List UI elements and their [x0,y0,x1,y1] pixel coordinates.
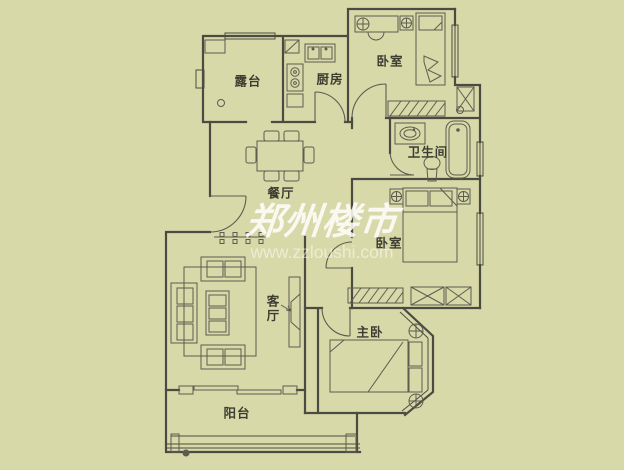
tv [291,294,300,330]
dining-chair [304,147,314,163]
watermark-url: www.zzloushi.com [244,242,400,263]
bedroom-north-door-arc [352,84,386,118]
desk-lamp [357,18,369,30]
duct-shaft [457,87,475,114]
coffee-table [206,291,229,335]
desk-chair [368,32,384,40]
room-label-bedroom-north: 卧室 [376,51,403,70]
balcony-railing [166,434,360,452]
stove [287,64,303,91]
kitchen-sink [305,44,335,62]
bathtub [446,121,470,178]
bedside-lamp [409,324,423,338]
nightstand-lamp [457,189,470,204]
master-door-arc [322,308,350,336]
wardrobe-hatched [348,288,403,303]
room-label-master: 主卧 [356,322,383,341]
kitchen-door-arc [315,92,345,122]
sofa-bottom [201,345,245,369]
terrace-window [225,33,275,39]
fridge [285,40,299,53]
bed-single [416,13,445,85]
nightstand-lamp [400,16,413,30]
room-label-terrace: 露台 [234,71,261,90]
closet-x-box [411,287,444,305]
bathroom-window [477,142,483,176]
bedroom-north-window [452,25,458,77]
floor-drain [183,450,190,457]
room-label-kitchen: 厨房 [316,69,343,88]
terrace-cabinet [205,40,225,53]
dining-chair [246,147,256,163]
bedside-lamp [409,394,423,408]
sofa-top [201,257,245,281]
kitchen-cabinet [287,94,303,107]
wardrobe-hatched [388,101,445,116]
dining-chair [284,171,299,181]
dining-chair [264,171,279,181]
bedroom-east-window [477,213,483,265]
bed-master [330,340,422,392]
closet-x-box [446,287,471,305]
dining-table [257,141,303,171]
balcony-sliding-door [179,386,297,394]
terrace-door-knob [218,100,225,107]
dining-chair [284,131,299,141]
bed-double [403,188,457,262]
room-label-balcony: 阳台 [223,403,250,422]
dining-chair [264,131,279,141]
room-label-living: 客厅 [263,295,282,324]
bedroom-north-fixtures [355,13,474,116]
dining-table-set [246,131,314,181]
watermark-brand: 郑州楼市 [240,198,405,244]
floor-plan-canvas: 露台 厨房 卧室 卫生间 餐厅 卧室 客厅 主卧 阳台 郑州楼市 www.zzl… [0,0,624,470]
room-label-bathroom: 卫生间 [408,142,449,161]
